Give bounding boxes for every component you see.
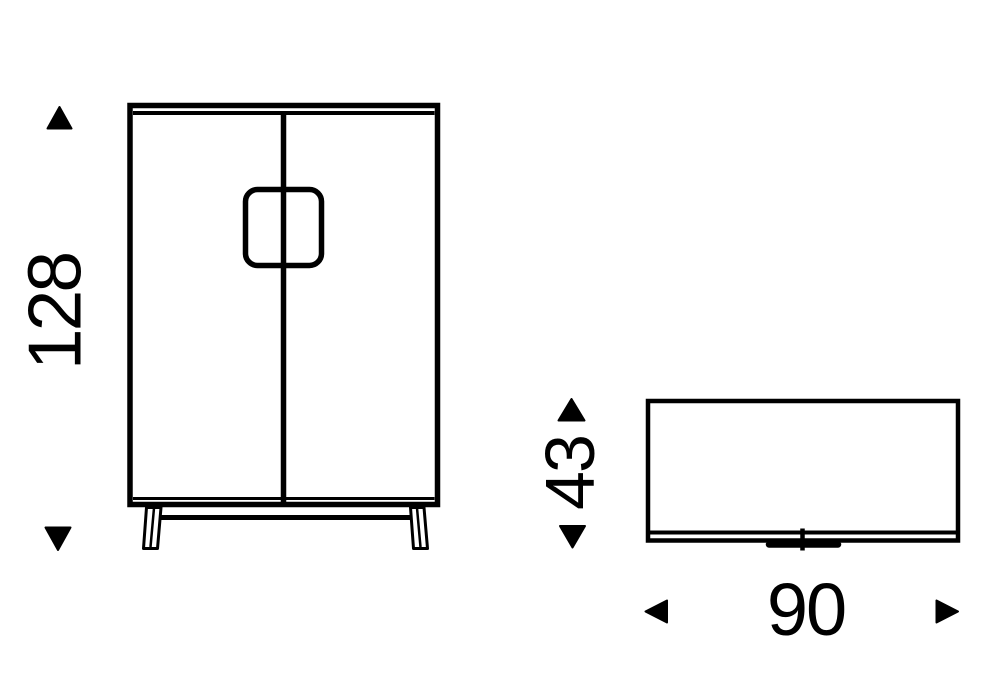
top-cabinet-body-outline [648,401,958,541]
height-dimension-label: 128 [18,254,93,370]
depth-dimension-label: 43 [535,436,605,510]
width-arrow-left-icon [646,601,668,623]
width-arrow-right-icon [937,601,959,623]
cabinet-linework [0,0,1000,700]
depth-arrow-down-icon [560,526,585,548]
cabinet-top-view [648,401,958,551]
height-arrow-up-icon [48,107,72,129]
width-dimension-label: 90 [767,573,845,647]
depth-arrow-up-icon [559,399,585,421]
cabinet-front-view [130,106,438,549]
dimension-diagram-canvas: 128 43 90 [0,0,1000,700]
height-arrow-down-icon [46,528,71,551]
